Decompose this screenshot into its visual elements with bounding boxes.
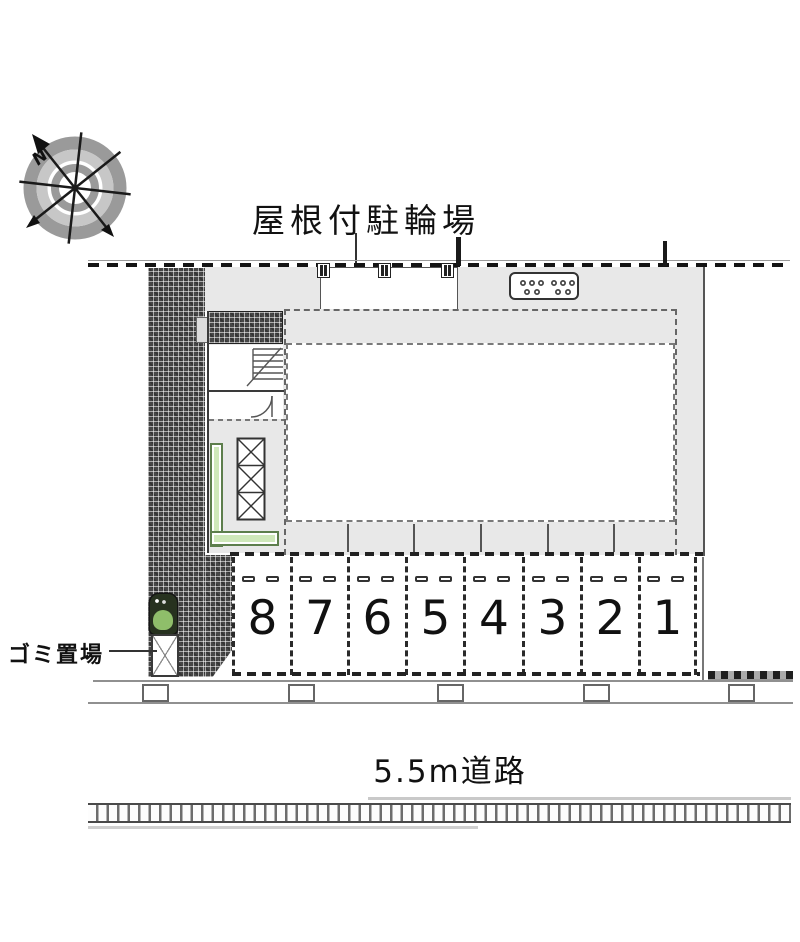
wheel-stop-icon: [415, 576, 428, 582]
parking-front-dashed-line: [232, 672, 700, 676]
wheel-stop-icon: [473, 576, 486, 582]
door-swing-arc-icon: [249, 394, 275, 419]
sidewalk-curb-bottom-line: [88, 702, 793, 704]
compass-rose-icon: N: [8, 116, 138, 256]
west-wing-hatched-block: [208, 311, 283, 344]
parking-space-number: 8: [235, 591, 290, 646]
main-room: [286, 343, 675, 522]
catch-basin-icon: [288, 684, 315, 702]
bay-divider: [480, 524, 482, 552]
parking-space-number: 2: [583, 591, 638, 646]
planter-strip-horizontal: [210, 531, 279, 546]
parking-space: 1: [638, 557, 697, 675]
bicycle-parking-label: 屋根付駐輪場: [252, 194, 480, 242]
canopy-post-icon: [378, 263, 391, 278]
wheel-stop-icon: [323, 576, 336, 582]
wheel-stop-icon: [299, 576, 312, 582]
staircase-icon: [245, 346, 283, 388]
catch-basin-icon: [437, 684, 464, 702]
wheel-stop-icon: [647, 576, 660, 582]
bay-divider: [613, 524, 615, 552]
east-wall-line: [703, 267, 705, 556]
parking-space: 2: [580, 557, 638, 675]
hatched-strip-bevel: [205, 555, 232, 677]
utility-pole-icon: [663, 241, 667, 266]
parking-space-number: 3: [525, 591, 580, 646]
parking-space: 5: [405, 557, 463, 675]
boundary-thin-line: [88, 260, 790, 262]
bay-divider: [547, 524, 549, 552]
parking-space-number: 6: [350, 591, 405, 646]
parking-row: 8 7 6 5 4 3 2: [232, 557, 697, 675]
wheel-stop-icon: [357, 576, 370, 582]
sidewalk-curb-top-line: [93, 680, 793, 682]
road-label: 5.5m道路: [100, 746, 800, 791]
wheel-stop-icon: [556, 576, 569, 582]
parking-space: 6: [347, 557, 405, 675]
wheel-stop-icon: [381, 576, 394, 582]
east-footprint-band: [677, 267, 705, 554]
bay-divider: [413, 524, 415, 552]
canopy-post-icon: [317, 263, 330, 278]
wheel-stop-icon: [614, 576, 627, 582]
parking-space-number: 7: [293, 591, 347, 646]
road-shadow-line: [88, 826, 478, 829]
east-site-boundary-line: [702, 557, 704, 681]
elevator-shaft-icon: [236, 437, 266, 521]
parking-space: 7: [290, 557, 347, 675]
wheel-stop-icon: [439, 576, 452, 582]
wheel-stop-icon: [242, 576, 255, 582]
wheel-stop-icon: [590, 576, 603, 582]
bay-divider: [347, 524, 349, 552]
catch-basin-icon: [583, 684, 610, 702]
parking-space-number: 5: [408, 591, 463, 646]
parking-space: 8: [232, 557, 290, 675]
parking-space: 4: [463, 557, 522, 675]
catch-basin-icon: [728, 684, 755, 702]
wheel-stop-icon: [671, 576, 684, 582]
garbage-x-box-icon: [151, 634, 179, 677]
wing-dashed-partition: [209, 419, 284, 421]
canopy-post-icon: [441, 263, 454, 278]
tree-icon: [150, 594, 177, 634]
utility-pole-icon: [456, 237, 461, 266]
garbage-area-label: ゴミ置場: [8, 637, 104, 669]
wheel-stop-icon: [266, 576, 279, 582]
parking-space-number: 1: [641, 591, 694, 646]
parking-space: 3: [522, 557, 580, 675]
south-wall-dashed-line: [230, 552, 703, 556]
site-plan: N 屋根付駐輪場: [0, 0, 800, 942]
leader-line-garbage: [109, 650, 157, 652]
road-shadow-line: [368, 797, 791, 800]
wheel-stop-icon: [532, 576, 545, 582]
parking-space-number: 4: [466, 591, 522, 646]
road-block-wall-band: [88, 803, 791, 823]
wheel-stop-icon: [497, 576, 510, 582]
catch-basin-icon: [142, 684, 169, 702]
bicycle-rack-dots-icon: [509, 272, 579, 300]
